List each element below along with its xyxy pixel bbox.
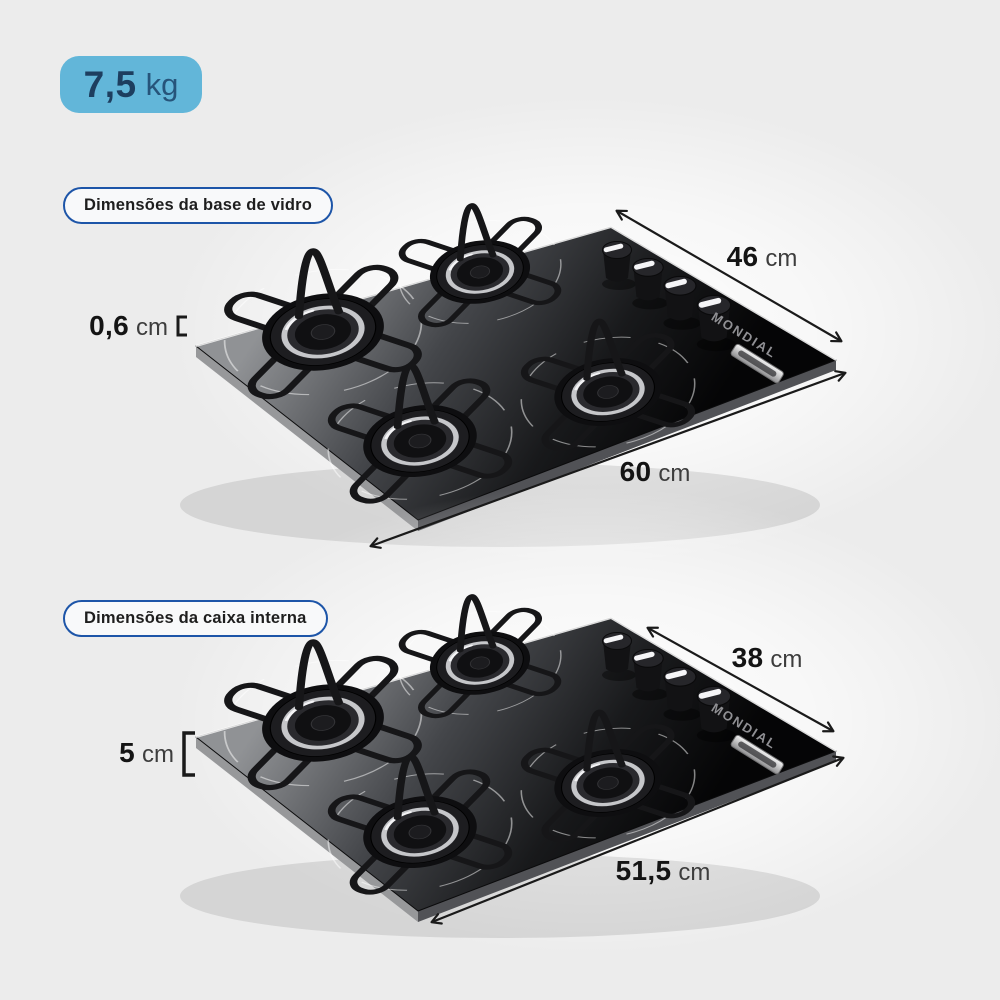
dimension-unit: cm	[136, 314, 168, 342]
dimension-depth-glass: 46 cm	[727, 241, 798, 273]
cooktop-image-inner-box	[170, 486, 1000, 956]
product-diagram-canvas: MONDIAL	[0, 0, 1000, 1000]
weight-value: 7,5	[84, 64, 137, 106]
dimension-value: 5	[119, 737, 135, 769]
dimension-width-glass: 60 cm	[620, 456, 691, 488]
section-label-glass-base: Dimensões da base de vidro	[63, 187, 333, 224]
dimension-thickness-box: 5 cm	[119, 737, 174, 769]
dimension-depth-box: 38 cm	[732, 642, 803, 674]
dimension-unit: cm	[658, 460, 690, 488]
dimension-unit: cm	[770, 646, 802, 674]
weight-badge: 7,5 kg	[60, 56, 202, 113]
dimension-unit: cm	[678, 859, 710, 887]
dimension-value: 0,6	[89, 310, 129, 342]
dimension-value: 51,5	[616, 855, 672, 887]
dimension-unit: cm	[142, 741, 174, 769]
product-dimensions-diagram: MONDIAL 7,5 kg Dimensões d	[0, 0, 1000, 1000]
dimension-thickness-glass: 0,6 cm	[89, 310, 168, 342]
dimension-value: 60	[620, 456, 652, 488]
weight-unit: kg	[146, 67, 179, 103]
dimension-value: 46	[727, 241, 759, 273]
dimension-width-box: 51,5 cm	[616, 855, 711, 887]
dimension-unit: cm	[765, 245, 797, 273]
section-label-inner-box: Dimensões da caixa interna	[63, 600, 328, 637]
dimension-value: 38	[732, 642, 764, 674]
